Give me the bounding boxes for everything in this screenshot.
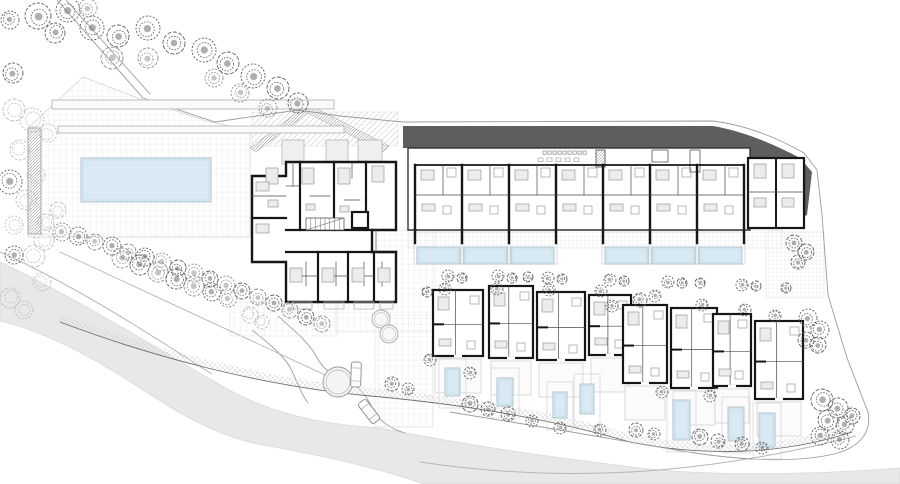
furniture: [782, 198, 794, 207]
tree-core: [64, 7, 71, 14]
tree-core: [527, 276, 530, 279]
tree-core: [225, 296, 230, 301]
tree-core: [741, 283, 745, 287]
terrace-pool-4: [652, 247, 695, 264]
tree-core: [784, 287, 787, 290]
furniture: [609, 170, 622, 180]
furniture: [322, 268, 334, 282]
tree-core: [699, 281, 702, 284]
tree-core: [761, 446, 765, 450]
furniture: [302, 168, 314, 184]
tree-core: [681, 281, 684, 284]
tree-core: [92, 239, 97, 244]
tree-core: [842, 422, 847, 427]
tree-core: [287, 307, 292, 312]
furniture: [378, 268, 390, 282]
furniture: [256, 182, 269, 191]
terrace-pool-3: [605, 247, 648, 264]
tree-core: [425, 290, 428, 293]
tree-core: [224, 60, 231, 67]
furniture: [469, 204, 482, 211]
tree-core: [506, 413, 510, 417]
tree-core: [9, 71, 15, 77]
tree-core: [469, 371, 473, 375]
car-body: [351, 362, 362, 387]
tree-core: [850, 413, 855, 418]
tree-core: [171, 40, 178, 47]
furniture: [629, 366, 641, 373]
tree-core: [637, 297, 641, 301]
tree-core: [530, 419, 534, 423]
tree-core: [774, 314, 778, 318]
tree-core: [191, 283, 197, 289]
furniture: [268, 200, 278, 207]
tree-core: [272, 301, 277, 306]
tree-core: [461, 276, 464, 279]
tree-core: [35, 13, 43, 21]
site-plan: [0, 0, 900, 484]
tree-core: [652, 432, 656, 436]
furniture: [372, 166, 384, 182]
tree-core: [740, 442, 744, 446]
tree-core: [796, 261, 800, 265]
tree-core: [819, 396, 826, 403]
furniture: [422, 204, 435, 211]
terrace-pool-0: [417, 247, 460, 264]
tree-core: [256, 295, 261, 300]
planter-bar-1: [58, 126, 344, 133]
amenity-island: [652, 150, 668, 162]
car-0: [351, 362, 362, 387]
tree-core: [701, 303, 705, 307]
tree-core: [76, 234, 81, 239]
tree-core: [223, 283, 228, 288]
furniture: [516, 204, 529, 211]
tree-core: [85, 6, 90, 11]
furniture: [468, 170, 481, 180]
villa-pool-4: [673, 400, 690, 440]
tree-core: [834, 406, 840, 412]
furniture: [760, 328, 771, 341]
furniture: [439, 339, 451, 346]
tree-core: [610, 304, 614, 308]
tree-core: [792, 241, 797, 246]
tree-core: [654, 294, 658, 298]
furniture: [718, 321, 729, 334]
furniture: [754, 198, 766, 207]
tree-core: [559, 426, 563, 430]
tree-core: [294, 101, 300, 107]
terrace-pool-2: [511, 247, 554, 264]
tree-core: [115, 33, 122, 40]
furniture: [266, 168, 278, 184]
a-balcony-top: [282, 140, 304, 164]
tree-core: [660, 390, 664, 394]
tree-core: [837, 437, 842, 442]
furniture: [542, 299, 553, 312]
tree-core: [209, 289, 214, 294]
tree-core: [7, 17, 12, 22]
tree-core: [407, 388, 411, 392]
furniture: [719, 369, 731, 376]
tree-core: [548, 288, 552, 292]
furniture: [352, 268, 364, 282]
tree-core: [144, 25, 151, 32]
furniture: [306, 204, 315, 210]
furniture: [677, 371, 689, 378]
a-balcony-top: [326, 140, 348, 164]
tree-core: [634, 428, 638, 432]
tree-core: [815, 343, 820, 348]
tree-core: [155, 270, 161, 276]
furniture: [340, 206, 349, 212]
tree-core: [697, 434, 702, 439]
furniture: [494, 293, 505, 306]
tree-core: [443, 287, 447, 291]
main-pool: [81, 158, 211, 202]
villa-door-opening: [557, 359, 565, 362]
tree-core: [240, 288, 245, 293]
roundabout-planter: [323, 367, 353, 397]
tree-core: [495, 287, 499, 291]
furniture: [543, 343, 555, 350]
tree-core: [717, 440, 721, 444]
tree-core: [250, 73, 257, 80]
tree-core: [817, 327, 822, 332]
furniture: [704, 204, 717, 211]
furniture: [438, 297, 449, 310]
tree-core: [319, 321, 324, 326]
tree-core: [622, 280, 625, 283]
tree-core: [144, 56, 150, 62]
furniture: [754, 164, 766, 178]
tree-core: [447, 275, 451, 279]
furniture: [595, 338, 607, 345]
tree-core: [274, 85, 281, 92]
tree-core: [174, 276, 180, 282]
tree-core: [709, 394, 713, 398]
site-plan-drawing: [0, 0, 900, 484]
tree-core: [804, 338, 809, 343]
tree-core: [12, 252, 17, 257]
furniture: [703, 170, 716, 180]
tree-core: [6, 178, 13, 185]
villa-pool-1: [497, 378, 513, 406]
furniture: [421, 170, 434, 180]
furniture: [782, 164, 794, 178]
villa-door-opening: [690, 387, 698, 390]
furniture: [628, 312, 639, 325]
furniture: [761, 382, 773, 389]
tree-core: [743, 308, 747, 312]
tree-core: [390, 382, 394, 386]
furniture: [562, 170, 575, 180]
tree-core: [109, 243, 114, 248]
tree-core: [136, 261, 142, 267]
elevator: [352, 212, 368, 228]
villa-door-opening: [454, 355, 462, 358]
villa-door-opening: [641, 382, 649, 385]
furniture: [495, 341, 507, 348]
terrace-pool-1: [464, 247, 507, 264]
furniture: [656, 170, 669, 180]
terrace-pool-5: [699, 247, 742, 264]
paved-plaza-2: [230, 302, 338, 336]
tree-core: [201, 46, 208, 53]
tree-core: [608, 278, 612, 282]
paved-plaza-3: [408, 230, 782, 248]
furniture: [657, 204, 670, 211]
tree-core: [546, 277, 550, 281]
tree-core: [511, 276, 514, 279]
furniture: [563, 204, 576, 211]
villa-pool-5: [728, 407, 744, 441]
a-balcony-top: [358, 140, 382, 164]
tree-core: [109, 54, 116, 61]
tree-core: [598, 428, 602, 432]
tree-core: [238, 90, 243, 95]
tree-core: [191, 270, 196, 275]
amenity-counter: [690, 150, 700, 172]
tree-core: [53, 29, 59, 35]
tree-core: [304, 315, 309, 320]
tree-core: [805, 316, 810, 321]
tree-core: [599, 290, 603, 294]
tree-core: [428, 358, 432, 362]
tree-core: [208, 276, 213, 281]
villa-terrace-4: [625, 386, 665, 420]
tree-core: [825, 418, 831, 424]
tree-core: [754, 285, 757, 288]
tree-core: [59, 229, 64, 234]
tree-core: [818, 433, 823, 438]
tree-core: [265, 106, 270, 111]
villa-door-opening: [606, 354, 614, 357]
furniture: [676, 315, 687, 328]
villa-door-opening: [507, 357, 515, 360]
furniture: [610, 204, 623, 211]
tree-core: [804, 250, 809, 255]
tree-core: [211, 75, 216, 80]
tree-core: [497, 275, 501, 279]
furniture: [515, 170, 528, 180]
tree-core: [89, 24, 96, 31]
tree-core: [468, 401, 473, 406]
furniture: [338, 168, 350, 184]
tree-core: [560, 277, 563, 280]
villa-door-opening: [775, 398, 783, 401]
tree-core: [119, 255, 125, 261]
furniture: [594, 302, 605, 315]
tree-core: [486, 408, 490, 412]
furniture: [256, 224, 269, 233]
furniture: [290, 268, 302, 282]
plan-svg: [0, 0, 900, 484]
villa-door-opening: [728, 385, 736, 388]
tree-core: [666, 281, 670, 285]
